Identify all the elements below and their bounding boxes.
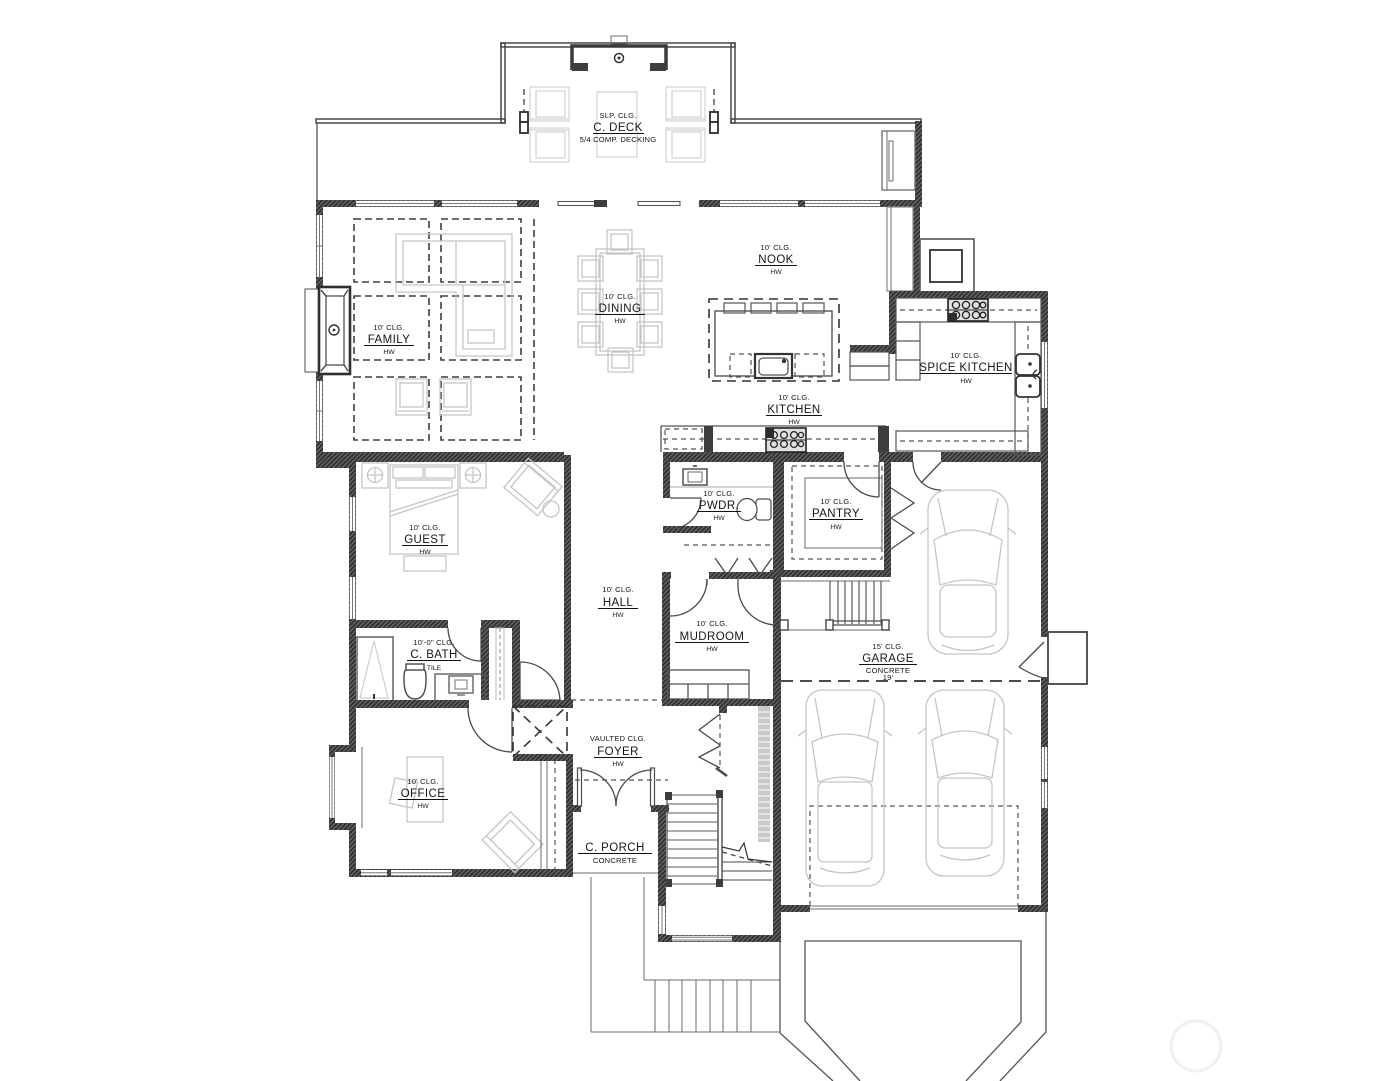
svg-text:VAULTED CLG.: VAULTED CLG.	[590, 734, 646, 743]
svg-text:10' CLG.: 10' CLG.	[407, 777, 438, 786]
svg-text:10' CLG.: 10' CLG.	[696, 619, 727, 628]
svg-text:10' CLG.: 10' CLG.	[602, 585, 633, 594]
svg-text:HW: HW	[417, 803, 429, 810]
svg-text:HW: HW	[713, 515, 725, 522]
svg-text:SPICE KITCHEN: SPICE KITCHEN	[919, 362, 1012, 374]
svg-text:GARAGE: GARAGE	[862, 653, 914, 665]
svg-text:10'-0" CLG.: 10'-0" CLG.	[413, 638, 454, 647]
svg-text:DINING: DINING	[599, 303, 642, 315]
svg-text:C. PORCH: C. PORCH	[585, 842, 644, 854]
svg-text:PANTRY: PANTRY	[812, 508, 860, 520]
svg-text:HW: HW	[383, 349, 395, 356]
svg-text:10' CLG.: 10' CLG.	[778, 393, 809, 402]
svg-text:CONCRETE: CONCRETE	[593, 856, 637, 865]
svg-text:HW: HW	[706, 646, 718, 653]
svg-text:PWDR.: PWDR.	[699, 500, 739, 512]
svg-text:C. BATH: C. BATH	[410, 649, 457, 661]
svg-text:10' CLG.: 10' CLG.	[820, 497, 851, 506]
svg-text:10' CLG.: 10' CLG.	[760, 243, 791, 252]
svg-text:HW: HW	[770, 269, 782, 276]
svg-text:C. DECK: C. DECK	[593, 122, 642, 134]
svg-text:NOOK: NOOK	[758, 254, 793, 266]
svg-text:5/4 COMP. DECKING: 5/4 COMP. DECKING	[580, 135, 657, 144]
svg-text:10' CLG.: 10' CLG.	[950, 351, 981, 360]
svg-text:10' CLG.: 10' CLG.	[703, 489, 734, 498]
svg-text:MUDROOM: MUDROOM	[680, 631, 745, 643]
svg-text:GUEST: GUEST	[404, 534, 446, 546]
svg-text:10' CLG.: 10' CLG.	[409, 523, 440, 532]
svg-text:HW: HW	[788, 419, 800, 426]
svg-text:KITCHEN: KITCHEN	[767, 404, 820, 416]
svg-text:HW: HW	[960, 378, 972, 385]
svg-text:15' CLG.: 15' CLG.	[872, 642, 903, 651]
svg-text:TILE: TILE	[427, 665, 442, 672]
svg-text:FOYER: FOYER	[597, 746, 639, 758]
svg-text:HW: HW	[830, 524, 842, 531]
svg-text:OFFICE: OFFICE	[401, 788, 446, 800]
svg-text:HALL: HALL	[603, 597, 634, 609]
svg-text:10' CLG.: 10' CLG.	[373, 323, 404, 332]
svg-text:SLP. CLG.: SLP. CLG.	[599, 111, 636, 120]
svg-text:FAMILY: FAMILY	[368, 334, 410, 346]
svg-text:HW: HW	[614, 318, 626, 325]
svg-text:HW: HW	[612, 612, 624, 619]
svg-text:19': 19'	[883, 673, 894, 682]
svg-text:10' CLG.: 10' CLG.	[604, 292, 635, 301]
svg-text:HW: HW	[612, 761, 624, 768]
svg-text:HW: HW	[419, 549, 431, 556]
